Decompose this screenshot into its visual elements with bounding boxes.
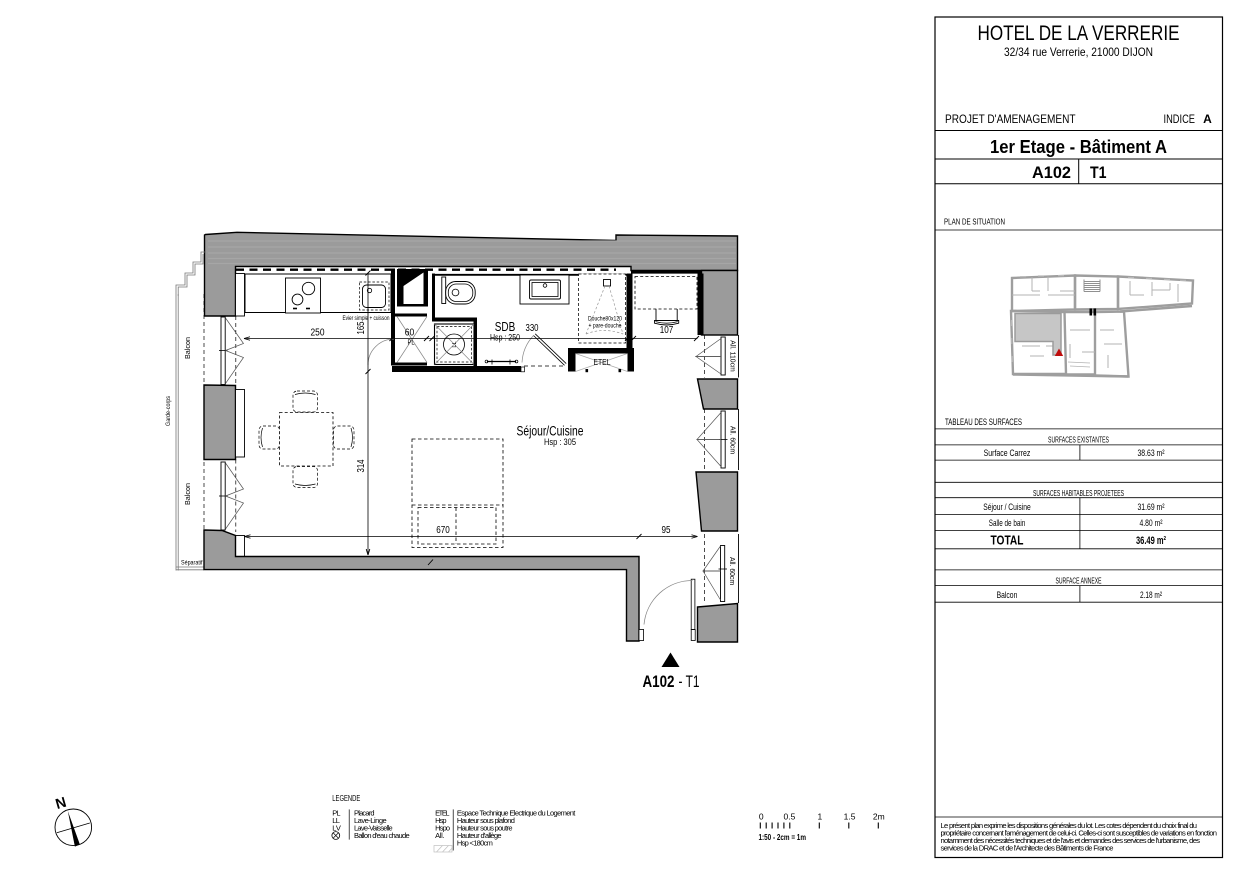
svg-text:All. 60cm: All. 60cm xyxy=(729,426,736,454)
svg-text:Hsp <180cm: Hsp <180cm xyxy=(457,839,493,848)
svg-text:LL: LL xyxy=(452,341,458,347)
svg-text:All. 60cm: All. 60cm xyxy=(728,557,735,585)
svg-text:1.5: 1.5 xyxy=(844,812,856,822)
svg-text:Douche80x120: Douche80x120 xyxy=(588,317,623,323)
svg-text:Ballon d'eau chaude: Ballon d'eau chaude xyxy=(354,831,410,840)
svg-text:314: 314 xyxy=(356,459,367,472)
svg-text:Balcon: Balcon xyxy=(185,337,192,359)
svg-text:INDICE: INDICE xyxy=(1164,112,1196,126)
svg-text:1er Etage - Bâtiment A: 1er Etage - Bâtiment A xyxy=(990,137,1167,157)
svg-text:107: 107 xyxy=(660,325,674,336)
svg-text:60: 60 xyxy=(405,328,415,339)
svg-text:SURFACE ANNEXE: SURFACE ANNEXE xyxy=(1056,577,1102,586)
svg-text:1:50 - 2cm = 1m: 1:50 - 2cm = 1m xyxy=(759,832,807,842)
svg-text:A: A xyxy=(1203,112,1212,126)
svg-text:All. 110cm: All. 110cm xyxy=(729,340,736,372)
svg-text:4.80 m²: 4.80 m² xyxy=(1140,518,1163,529)
svg-text:38.63 m²: 38.63 m² xyxy=(1138,448,1165,459)
svg-text:TABLEAU DES SURFACES: TABLEAU DES SURFACES xyxy=(945,417,1022,427)
svg-text:Séparatif: Séparatif xyxy=(181,560,203,567)
svg-text:95: 95 xyxy=(662,525,671,536)
svg-text:All.: All. xyxy=(435,831,445,840)
svg-text:Surface Carrez: Surface Carrez xyxy=(984,448,1031,459)
svg-text:- T1: - T1 xyxy=(679,673,700,691)
svg-text:0: 0 xyxy=(759,812,764,822)
svg-text:250: 250 xyxy=(311,328,325,339)
svg-text:670: 670 xyxy=(436,525,450,536)
svg-text:ETEL: ETEL xyxy=(594,358,611,367)
svg-text:36.49 m²: 36.49 m² xyxy=(1136,535,1166,547)
svg-text:Garde-corps: Garde-corps xyxy=(166,396,172,426)
svg-text:services de la DRAC et de l'Ar: services de la DRAC et de l'Architecte d… xyxy=(941,844,1114,853)
svg-text:2.18 m²: 2.18 m² xyxy=(1140,590,1162,601)
svg-text:PROJET D'AMENAGEMENT: PROJET D'AMENAGEMENT xyxy=(945,112,1076,126)
svg-text:Hsp : 250: Hsp : 250 xyxy=(490,333,520,344)
svg-text:Hsp : 305: Hsp : 305 xyxy=(544,437,576,447)
svg-text:1: 1 xyxy=(818,812,823,822)
svg-text:A102: A102 xyxy=(643,673,675,691)
svg-text:HOTEL DE LA VERRERIE: HOTEL DE LA VERRERIE xyxy=(978,22,1180,45)
svg-text:165: 165 xyxy=(356,321,367,334)
svg-text:TOTAL: TOTAL xyxy=(991,533,1024,548)
svg-text:Salle de bain: Salle de bain xyxy=(989,518,1026,529)
svg-text:SURFACES HABITABLES PROJETEES: SURFACES HABITABLES PROJETEES xyxy=(1033,489,1124,498)
svg-text:Balcon: Balcon xyxy=(997,590,1018,601)
svg-text:PL: PL xyxy=(408,340,415,347)
svg-text:Balcon: Balcon xyxy=(185,483,192,505)
svg-text:PLAN DE SITUATION: PLAN DE SITUATION xyxy=(944,218,1005,227)
svg-text:Evier simple + cuisson: Evier simple + cuisson xyxy=(343,316,390,322)
svg-text:+ pare-douche: + pare-douche xyxy=(589,324,623,330)
svg-text:2m: 2m xyxy=(873,812,885,822)
svg-text:0.5: 0.5 xyxy=(783,812,795,822)
svg-text:LEGENDE: LEGENDE xyxy=(332,793,360,803)
svg-text:T1: T1 xyxy=(1090,163,1107,182)
svg-text:Séjour / Cuisine: Séjour / Cuisine xyxy=(983,502,1031,513)
svg-text:330: 330 xyxy=(526,323,539,334)
svg-text:LV: LV xyxy=(332,824,341,833)
svg-text:A102: A102 xyxy=(1032,163,1071,182)
svg-text:SURFACES EXISTANTES: SURFACES EXISTANTES xyxy=(1048,436,1109,445)
svg-text:32/34 rue Verrerie, 21000 DIJO: 32/34 rue Verrerie, 21000 DIJON xyxy=(1004,45,1153,59)
svg-text:31.69 m²: 31.69 m² xyxy=(1138,502,1165,513)
